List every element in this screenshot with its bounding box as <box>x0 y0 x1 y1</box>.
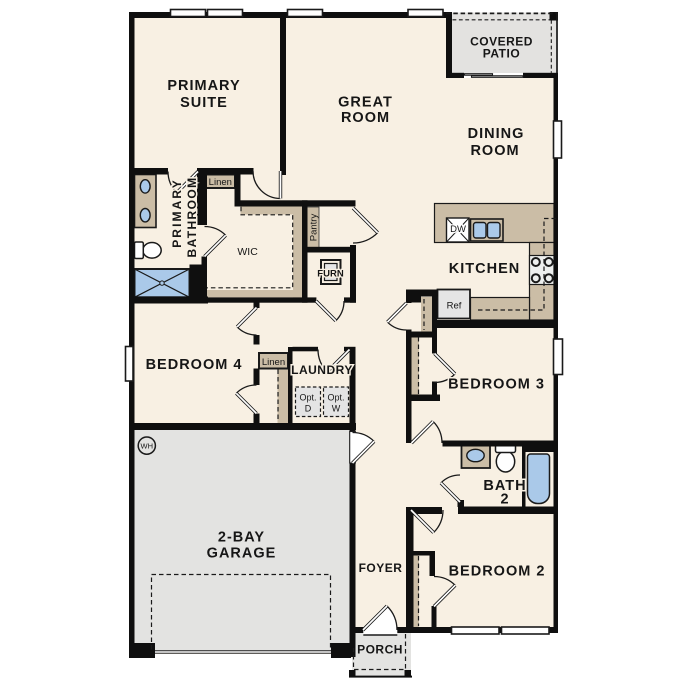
svg-text:W: W <box>332 404 341 414</box>
svg-text:WIC: WIC <box>237 246 258 258</box>
svg-text:PRIMARY: PRIMARY <box>170 178 184 248</box>
svg-text:Opt.: Opt. <box>299 393 316 403</box>
svg-text:WH: WH <box>141 442 154 451</box>
svg-text:2-BAY: 2-BAY <box>218 530 265 546</box>
svg-text:FURN: FURN <box>317 269 344 280</box>
svg-text:FOYER: FOYER <box>359 561 403 575</box>
svg-text:Opt.: Opt. <box>327 393 344 403</box>
svg-text:SUITE: SUITE <box>180 95 228 111</box>
svg-text:BEDROOM 3: BEDROOM 3 <box>448 377 545 393</box>
svg-text:DW: DW <box>450 224 466 235</box>
svg-text:Pantry: Pantry <box>309 214 320 242</box>
svg-text:LAUNDRY: LAUNDRY <box>291 363 353 377</box>
svg-text:DINING: DINING <box>468 126 525 142</box>
svg-text:PORCH: PORCH <box>357 643 403 657</box>
svg-text:PRIMARY: PRIMARY <box>167 78 240 94</box>
svg-text:Linen: Linen <box>262 357 285 368</box>
svg-text:GREAT: GREAT <box>338 95 393 111</box>
svg-text:Linen: Linen <box>209 177 232 188</box>
svg-text:2: 2 <box>500 492 509 508</box>
svg-text:GARAGE: GARAGE <box>207 546 277 562</box>
svg-text:ROOM: ROOM <box>470 143 519 159</box>
svg-text:Ref: Ref <box>447 301 462 312</box>
svg-text:KITCHEN: KITCHEN <box>449 261 520 277</box>
svg-text:PATIO: PATIO <box>483 47 520 61</box>
svg-text:BATHROOM: BATHROOM <box>185 177 199 258</box>
svg-text:BEDROOM 4: BEDROOM 4 <box>146 357 243 373</box>
svg-text:D: D <box>305 404 312 414</box>
svg-text:BEDROOM 2: BEDROOM 2 <box>449 564 546 580</box>
svg-text:ROOM: ROOM <box>341 110 390 126</box>
